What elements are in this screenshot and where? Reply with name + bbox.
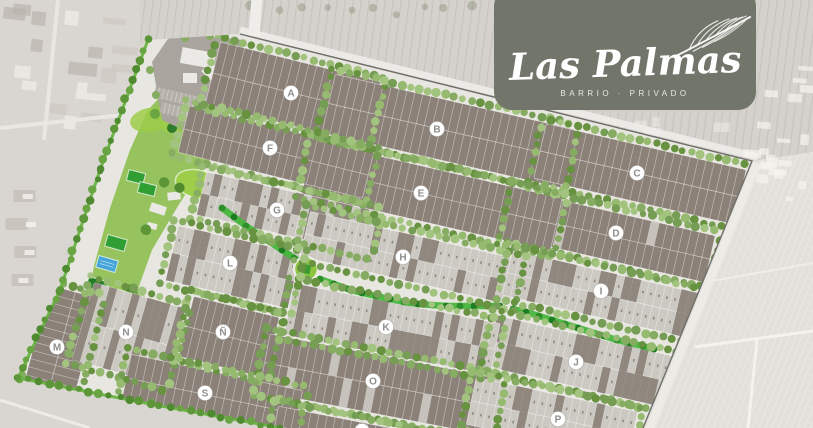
block-label-A: A	[287, 89, 294, 100]
block-label-E: E	[418, 189, 425, 200]
screenshot-root: ABCDEFGHIJKLMNÑOPS Las Palmas BARRIO · P…	[0, 0, 813, 428]
block-label-O: O	[369, 377, 377, 388]
block-label-I: I	[600, 287, 603, 298]
block-label-D: D	[612, 229, 619, 240]
logo-subtitle: BARRIO · PRIVADO	[560, 89, 689, 98]
block-label-L: L	[227, 259, 233, 270]
logo-title: Las Palmas	[508, 41, 742, 86]
block-label-H: H	[399, 253, 406, 264]
clubhouse-building	[183, 73, 197, 83]
block-label-J: J	[573, 358, 579, 369]
block-label-P: P	[555, 415, 562, 426]
block-label-K: K	[382, 323, 390, 334]
block-label-N: N	[122, 328, 129, 339]
block-label-F: F	[267, 144, 273, 155]
block-label-C: C	[633, 169, 640, 180]
block-label-G: G	[273, 206, 281, 217]
block-label-Ñ: Ñ	[219, 326, 226, 339]
block-label-S: S	[202, 389, 209, 400]
logo-card: Las Palmas BARRIO · PRIVADO	[494, 0, 756, 110]
block-label-B: B	[433, 125, 440, 136]
block-label-M: M	[53, 343, 61, 354]
